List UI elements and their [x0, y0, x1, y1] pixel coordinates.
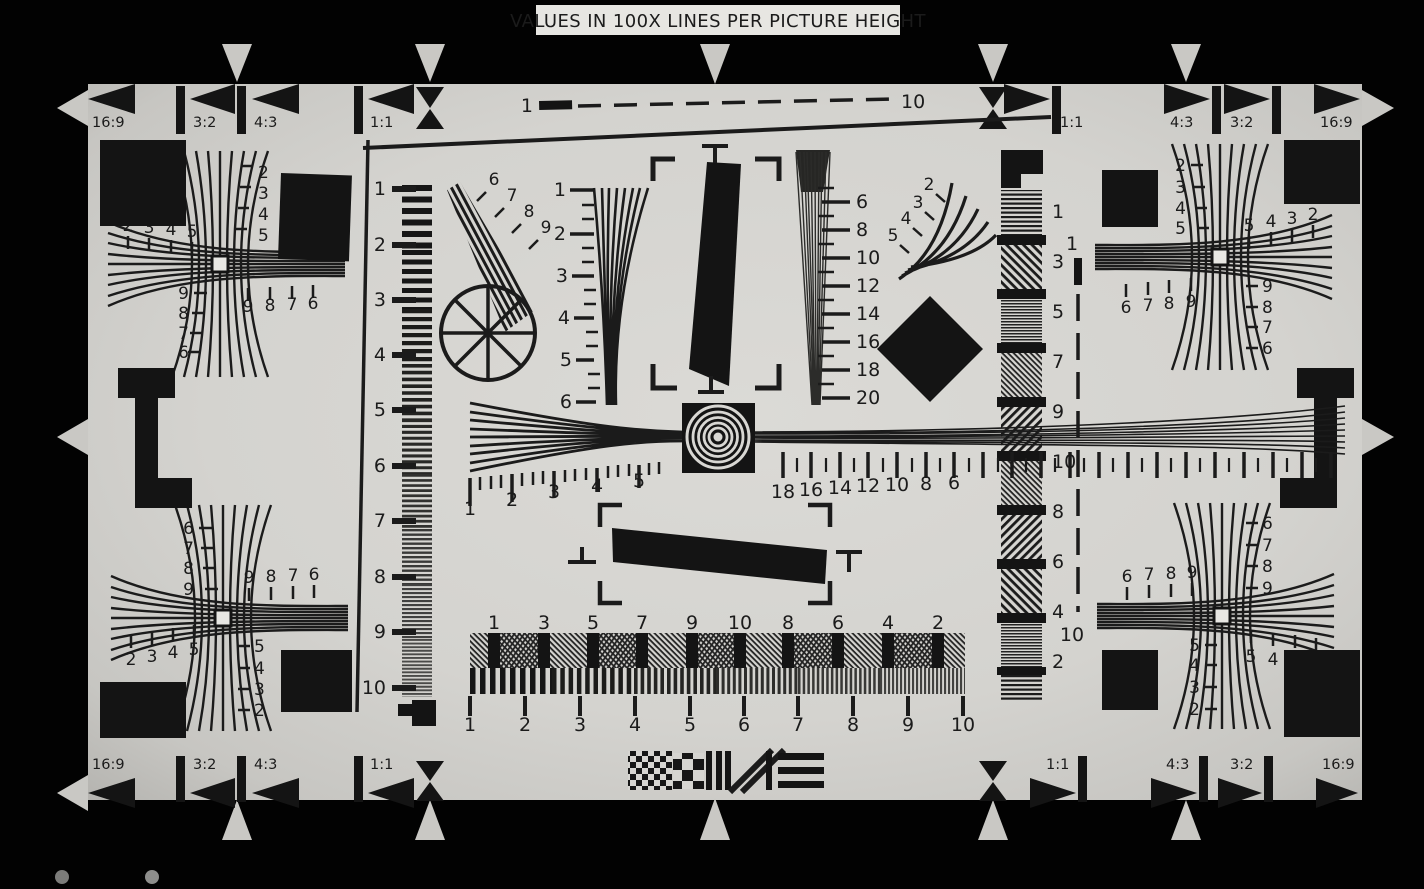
ruler-label: 10 [885, 474, 909, 496]
sweep-label: 2 [554, 223, 566, 245]
aspect-label: 16:9 [1320, 115, 1353, 131]
wedge-label: 9 [541, 218, 552, 238]
cluster-label: 9 [1262, 277, 1273, 297]
cluster-label: 4 [258, 205, 269, 225]
wedge-label: 5 [888, 226, 899, 246]
sweep-label: 7 [636, 612, 648, 634]
scale-label: 1 [1052, 201, 1064, 223]
ruler-label: 5 [633, 470, 645, 492]
chart-title-box: VALUES IN 100X LINES PER PICTURE HEIGHT [510, 5, 926, 35]
cluster-label: 9 [178, 284, 189, 304]
iso12233-resolution-chart: VALUES IN 100X LINES PER PICTURE HEIGHT … [0, 0, 1424, 889]
cluster-label: 8 [1166, 564, 1177, 584]
aspect-label: 4:3 [254, 115, 277, 131]
aspect-label: 3:2 [193, 115, 216, 131]
scale-label: 3 [1052, 251, 1064, 273]
sweep-label: 1 [464, 714, 476, 736]
cluster-label: 3 [258, 184, 269, 204]
ruler-label: 12 [856, 475, 880, 497]
sweep-label: 1 [488, 612, 500, 634]
cluster-label: 6 [1121, 298, 1132, 318]
fine-checkerboard [628, 751, 672, 790]
cluster-label: 6 [178, 343, 189, 363]
cluster-label: 6 [1262, 514, 1273, 534]
sweep-label: 6 [738, 714, 750, 736]
scale-start: 1 [521, 95, 533, 117]
scale-label: 6 [1052, 551, 1064, 573]
wedge-label: 7 [507, 186, 518, 206]
cluster-label: 3 [1175, 178, 1186, 198]
sweep-label: 8 [782, 612, 794, 634]
aspect-label: 1:1 [370, 757, 393, 773]
sweep-label: 14 [856, 303, 880, 325]
sweep-label: 6 [856, 191, 868, 213]
sweep-label: 4 [629, 714, 641, 736]
ruler-label: 8 [920, 473, 932, 495]
horizontal-stripe-block [778, 753, 824, 788]
cluster-label: 5 [258, 226, 269, 246]
cluster-label: 7 [287, 295, 298, 315]
sweep-label: 3 [538, 612, 550, 634]
aspect-label: 1:1 [1046, 757, 1069, 773]
cluster-label: 8 [266, 567, 277, 587]
sweep-label: 4 [882, 612, 894, 634]
sweep-label: 18 [856, 359, 880, 381]
cluster-label: 4 [1266, 212, 1277, 232]
scale-label: 7 [374, 510, 386, 532]
cluster-label: 8 [1262, 298, 1273, 318]
cluster-label: 4 [168, 643, 179, 663]
cluster-label: 8 [183, 559, 194, 579]
cluster-label: 2 [258, 163, 269, 183]
cluster-label: 5 [189, 640, 200, 660]
cluster-label: 9 [1186, 292, 1197, 312]
cluster-label: 2 [126, 650, 137, 670]
bottom-pattern-blocks [628, 750, 824, 792]
sweep-label: 7 [792, 714, 804, 736]
sweep-label: 10 [856, 247, 880, 269]
sweep-label: 5 [684, 714, 696, 736]
aspect-label: 3:2 [1230, 757, 1253, 773]
sweep-label: 9 [686, 612, 698, 634]
sweep-label: 2 [519, 714, 531, 736]
cluster-label: 3 [1287, 209, 1298, 229]
cluster-label: 7 [1144, 565, 1155, 585]
sweep-label: 16 [856, 331, 880, 353]
scale-label: 10 [362, 677, 386, 699]
sweep-label: 8 [856, 219, 868, 241]
scale-label: 7 [1052, 351, 1064, 373]
test-chart-photo: VALUES IN 100X LINES PER PICTURE HEIGHT … [0, 0, 1424, 889]
scale-end: 10 [1060, 624, 1084, 646]
scale-label: 6 [374, 455, 386, 477]
cluster-label: 9 [183, 580, 194, 600]
aspect-label: 16:9 [92, 115, 125, 131]
scale-label: 4 [1052, 601, 1064, 623]
ruler-label: 4 [591, 475, 603, 497]
cluster-label: 6 [309, 565, 320, 585]
ruler-label: 18 [771, 481, 795, 503]
wedge-label: 2 [924, 175, 935, 195]
cluster-label: 4 [1189, 656, 1200, 676]
cluster-label: 7 [183, 539, 194, 559]
sweep-label: 4 [558, 307, 570, 329]
cluster-label: 2 [254, 701, 265, 721]
cluster-label: 9 [1262, 579, 1273, 599]
sweep-label: 6 [832, 612, 844, 634]
sweep-label: 1 [554, 179, 566, 201]
ruler-label: 14 [828, 477, 852, 499]
cluster-label: 5 [187, 222, 198, 242]
sweep-label: 3 [574, 714, 586, 736]
scale-end: 10 [901, 91, 925, 113]
sweep-label: 8 [847, 714, 859, 736]
ruler-label: 16 [799, 479, 823, 501]
cluster-label: 2 [1175, 156, 1186, 176]
cluster-label: 3 [1189, 678, 1200, 698]
scale-label: 5 [374, 399, 386, 421]
aspect-label: 3:2 [193, 757, 216, 773]
wedge-label: 4 [901, 209, 912, 229]
cluster-label: 7 [1262, 318, 1273, 338]
aspect-label: 4:3 [1166, 757, 1189, 773]
scale-start: 1 [1066, 233, 1078, 255]
cluster-label: 3 [254, 680, 265, 700]
cluster-label: 8 [1164, 294, 1175, 314]
sweep-label: 3 [556, 265, 568, 287]
scale-label: 2 [1052, 651, 1064, 673]
cluster-label: 5 [1246, 647, 1257, 667]
scale-label: 8 [374, 566, 386, 588]
wedge-label: 6 [489, 170, 500, 190]
cluster-label: 6 [1262, 339, 1273, 359]
cluster-label: 5 [254, 637, 265, 657]
ruler-label: 6 [948, 472, 960, 494]
sweep-label: 10 [728, 612, 752, 634]
scale-label: 1 [374, 178, 386, 200]
aspect-label: 16:9 [1322, 757, 1355, 773]
sweep-label: 5 [560, 349, 572, 371]
cluster-label: 6 [183, 519, 194, 539]
cluster-label: 7 [288, 566, 299, 586]
aspect-label: 16:9 [92, 757, 125, 773]
ruler-label: 3 [548, 481, 560, 503]
sweep-label: 12 [856, 275, 880, 297]
scale-label: 8 [1052, 501, 1064, 523]
sweep-label: 20 [856, 387, 880, 409]
aspect-label: 1:1 [370, 115, 393, 131]
cluster-label: 9 [1187, 563, 1198, 583]
chart-title: VALUES IN 100X LINES PER PICTURE HEIGHT [510, 11, 926, 32]
cluster-label: 2 [1189, 700, 1200, 720]
ruler-label: 2 [506, 489, 518, 511]
cluster-label: 5 [1244, 216, 1255, 236]
sweep-label: 5 [587, 612, 599, 634]
sweep-label: 6 [560, 391, 572, 413]
cluster-label: 7 [1262, 536, 1273, 556]
scale-label: 9 [1052, 401, 1064, 423]
aspect-label: 1:1 [1060, 115, 1083, 131]
cluster-label: 9 [243, 297, 254, 317]
cluster-label: 8 [1262, 557, 1273, 577]
aspect-label: 3:2 [1230, 115, 1253, 131]
cluster-label: 7 [178, 324, 189, 344]
cluster-label: 4 [1175, 199, 1186, 219]
ruler-label: 1 [464, 498, 476, 520]
sweep-label: 10 [951, 714, 975, 736]
bullseye-target [682, 403, 755, 473]
wedge-label: 8 [524, 202, 535, 222]
cluster-label: 4 [254, 659, 265, 679]
sweep-label: 9 [902, 714, 914, 736]
spoked-circle [441, 286, 535, 380]
aspect-label: 4:3 [1170, 115, 1193, 131]
scale-label: 4 [374, 344, 386, 366]
cluster-label: 3 [147, 647, 158, 667]
cluster-label: 4 [1268, 650, 1279, 670]
cluster-label: 7 [1143, 296, 1154, 316]
cluster-label: 8 [265, 296, 276, 316]
aspect-label: 4:3 [254, 757, 277, 773]
cluster-label: 5 [1175, 219, 1186, 239]
scale-label: 2 [374, 234, 386, 256]
cluster-label: 5 [1189, 636, 1200, 656]
wedge-label: 3 [913, 193, 924, 213]
scale-label: 3 [374, 289, 386, 311]
cluster-label: 2 [1308, 205, 1319, 225]
scale-label: 9 [374, 621, 386, 643]
cluster-label: 9 [244, 568, 255, 588]
cluster-label: 6 [308, 294, 319, 314]
photo-artifact-dots [55, 870, 159, 884]
cluster-label: 8 [178, 304, 189, 324]
scale-label: 5 [1052, 301, 1064, 323]
coarse-checkerboard [673, 753, 704, 789]
sweep-label: 2 [932, 612, 944, 634]
cluster-label: 6 [1122, 567, 1133, 587]
